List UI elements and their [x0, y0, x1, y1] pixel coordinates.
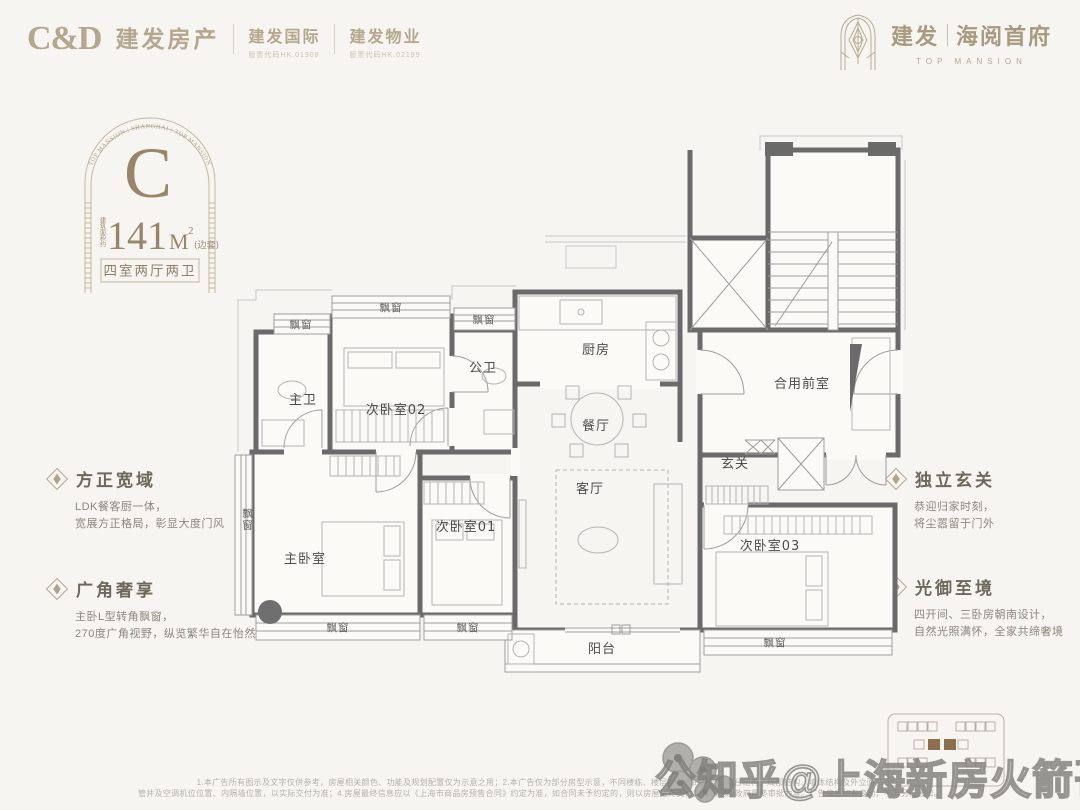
badge-area-suffix: (边套) — [194, 239, 219, 251]
label-bedroom-01: 次卧室01 — [436, 519, 497, 535]
cnd-brand-name: 建发房产 — [115, 20, 219, 58]
cnd-international-name: 建发国际 — [248, 23, 320, 47]
label-kitchen: 厨房 — [582, 342, 610, 358]
watermark-text: 公知乎@上海新房火箭哥 — [655, 746, 1080, 806]
badge-area-superscript: 2 — [188, 225, 194, 237]
header-right: 建发 海阅首府 TOP MANSION — [835, 12, 1052, 72]
diamond-leaf-icon — [45, 577, 69, 601]
feature-line: 自然光照满怀，全家共缔奢境 — [914, 624, 1074, 641]
label-balcony: 阳台 — [588, 642, 616, 657]
label-bedroom-02: 次卧室02 — [366, 402, 427, 418]
setback-detail — [566, 246, 616, 268]
cnd-property-stock-code: 股票代码HK.02199 — [349, 50, 421, 60]
cnd-logo: C&D — [27, 20, 101, 58]
feature-line: 四开间、三卧房朝南设计， — [914, 607, 1074, 624]
room-bedroom-03 — [700, 505, 895, 630]
label-foyer: 玄关 — [721, 457, 749, 472]
feature-line: 恭迎归家时刻， — [914, 499, 1074, 516]
wall-block — [868, 142, 896, 156]
header-divider — [233, 24, 234, 54]
header-divider — [334, 24, 335, 54]
label-shared-front: 合用前室 — [774, 376, 830, 392]
feature-line: 将尘嚣留于门外 — [914, 516, 1074, 533]
label-bedroom-03: 次卧室03 — [740, 538, 801, 554]
cnd-international-group: 建发国际 股票代码HK.01908 — [248, 23, 320, 60]
project-name-en: TOP MANSION — [891, 57, 1052, 66]
project-emblem-icon — [835, 12, 881, 72]
floorplan-drawing: 主卫 次卧室02 公卫 厨房 餐厅 合用前室 玄关 客厅 主卧室 次卧室01 次… — [225, 110, 915, 695]
diamond-leaf-icon — [45, 467, 69, 491]
badge-area-prefix: 建筑面积约 — [99, 216, 106, 248]
label-living: 客厅 — [576, 481, 604, 497]
label-master-bedroom: 主卧室 — [284, 551, 326, 567]
badge-area-unit: M — [169, 229, 189, 254]
label-public-bath: 公卫 — [469, 361, 497, 376]
cnd-property-name: 建发物业 — [349, 23, 421, 47]
room-master-bath — [256, 332, 330, 452]
project-logo: 建发 海阅首府 TOP MANSION — [891, 19, 1052, 66]
bay-label-vertical: 飘窗 — [241, 508, 253, 531]
unit-badge: TOP MANSION | SHANGHAI | TOP MANSION C 建… — [75, 103, 225, 303]
feature-title: 方正宽域 — [76, 466, 156, 491]
badge-layout-text: 四室两厅两卫 — [104, 263, 197, 280]
badge-area-value: 141 — [107, 213, 167, 258]
project-name: 海阅首府 — [956, 19, 1052, 51]
label-dining: 餐厅 — [582, 418, 610, 434]
feature-title: 光御至境 — [915, 574, 995, 599]
cnd-property-group: 建发物业 股票代码HK.02199 — [349, 23, 421, 60]
room-shared-front — [700, 330, 898, 455]
living-walls — [515, 150, 700, 630]
header-left: C&D 建发房产 建发国际 股票代码HK.01908 建发物业 股票代码HK.0… — [27, 20, 421, 60]
wall-block — [765, 142, 793, 156]
room-bedroom-02 — [330, 316, 452, 452]
project-divider — [947, 24, 948, 46]
bay-label: 飘窗 — [457, 621, 480, 634]
room-bedroom-01 — [420, 478, 515, 615]
feature-title: 广角奢享 — [76, 576, 156, 601]
bay-label: 飘窗 — [473, 313, 496, 326]
bay-label: 飘窗 — [380, 301, 403, 314]
bay-label: 飘窗 — [290, 318, 313, 331]
structural-column — [258, 600, 282, 624]
feature-title: 独立玄关 — [915, 466, 995, 491]
bay-label: 飘窗 — [764, 636, 787, 649]
floorplan-poster: C&D 建发房产 建发国际 股票代码HK.01908 建发物业 股票代码HK.0… — [0, 0, 1080, 810]
project-brand: 建发 — [891, 19, 939, 51]
cnd-international-stock-code: 股票代码HK.01908 — [248, 50, 320, 60]
room-kitchen — [515, 292, 680, 384]
unit-letter: C — [124, 133, 172, 213]
bay-label: 飘窗 — [327, 621, 350, 634]
label-master-bath: 主卫 — [289, 393, 317, 408]
